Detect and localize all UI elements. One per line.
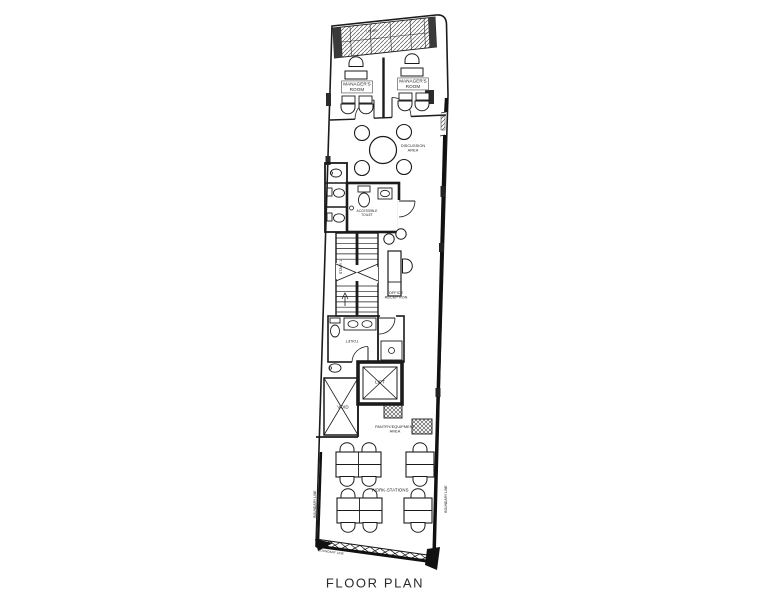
chair (362, 477, 376, 487)
boundary-line-left-label: BOUNDARY LINE (313, 490, 317, 517)
floor-plan-page: LEDGE MANAGER'S ROOM MANAGER'S ROOM DISC… (0, 0, 768, 600)
work-stations-label: WORK-STATIONS (371, 487, 408, 492)
pantry-equipment-label: PANTRY/EQUIPMENT AREA (375, 425, 415, 434)
chair (340, 477, 354, 487)
chair (405, 54, 419, 64)
floor-plan-drawing (0, 0, 768, 600)
chair (363, 523, 377, 533)
lift-label: LIFT (375, 379, 385, 384)
chair (413, 477, 427, 487)
chair (403, 259, 413, 273)
chair (411, 489, 425, 499)
chair (341, 523, 355, 533)
chair (341, 489, 355, 499)
chair (362, 443, 376, 453)
boundary-line-right-label: BOUNDARY LINE (444, 485, 448, 512)
void-label: VOID (337, 404, 348, 409)
office-reception-label: OFFICE RECEPTION (385, 291, 408, 300)
managers-room-right-label: MANAGER'S ROOM (397, 78, 429, 91)
chair (340, 443, 354, 453)
stair-1-label: STAIR 1 (339, 260, 343, 275)
chair (341, 104, 355, 114)
chair (411, 523, 425, 533)
managers-room-left-label: MANAGER'S ROOM (341, 81, 373, 94)
chair (413, 443, 427, 453)
page-title: FLOOR PLAN (326, 575, 424, 590)
discussion-area-label: DISCUSSION AREA (401, 144, 425, 153)
accessible-toilet-label: ACCESSIBLE TOILET (356, 209, 377, 217)
chair (398, 101, 412, 111)
chair (349, 57, 363, 67)
toilet-label: TOILET (345, 339, 358, 343)
chair (415, 101, 429, 111)
chair (359, 104, 373, 114)
